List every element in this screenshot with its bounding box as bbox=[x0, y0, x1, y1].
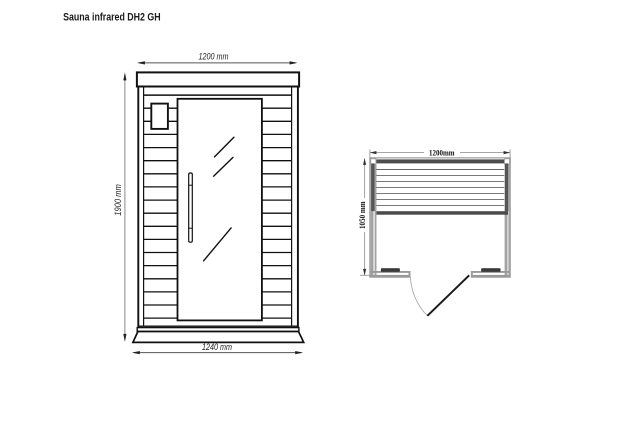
svg-text:1900 mm: 1900 mm bbox=[113, 184, 123, 216]
svg-text:1200mm: 1200mm bbox=[429, 148, 455, 158]
svg-text:1240 mm: 1240 mm bbox=[202, 342, 232, 352]
svg-text:1050 mm: 1050 mm bbox=[357, 201, 367, 229]
svg-text:Sauna infrared DH2 GH: Sauna infrared DH2 GH bbox=[63, 11, 161, 23]
svg-text:1200 mm: 1200 mm bbox=[199, 51, 229, 61]
